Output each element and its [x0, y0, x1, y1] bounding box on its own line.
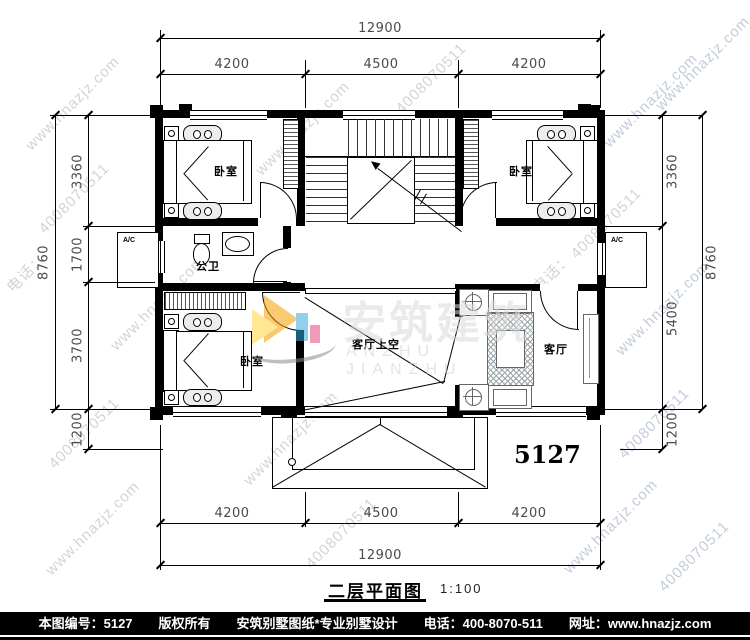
wall-bath-bottom	[155, 283, 305, 291]
door-leaf	[495, 182, 496, 218]
pilaster	[587, 407, 600, 420]
lamp-icon	[584, 130, 591, 137]
door-leaf	[260, 182, 261, 218]
room-label-bedroom: 卧室	[214, 163, 238, 179]
drawing-scale: 1:100	[440, 581, 483, 596]
footer-phone: 电话：400-8070-511	[424, 612, 543, 635]
dim-label: 8760	[37, 233, 52, 293]
porch-column	[288, 458, 296, 466]
footer-website: 网址：www.hnazjz.com	[569, 612, 712, 635]
dim-label: 5400	[666, 289, 681, 349]
dim-label: 4500	[341, 57, 421, 72]
side-cabinet-line	[589, 318, 590, 378]
dim-line	[160, 523, 600, 524]
room-label-bedroom: 卧室	[240, 353, 264, 369]
wardrobe	[283, 119, 299, 189]
lamp-icon	[168, 318, 175, 325]
extension-line	[600, 425, 601, 570]
extension-line	[83, 282, 155, 283]
lamp-icon	[168, 130, 175, 137]
door-leaf	[253, 281, 287, 282]
dim-label: 4200	[489, 57, 569, 72]
nightstand	[537, 202, 576, 220]
footer-plan-id: 本图编号：5127	[39, 612, 133, 635]
extension-line	[458, 60, 459, 108]
nightstand	[183, 389, 222, 406]
window	[190, 110, 267, 120]
speaker-cross	[463, 396, 482, 397]
dim-line	[160, 565, 600, 566]
speaker-cross	[463, 301, 482, 302]
tv-screen	[496, 330, 525, 368]
door-arc	[262, 292, 301, 331]
watermark-text: www.hnazjz.com	[600, 50, 701, 151]
tv-console-inner	[493, 293, 527, 310]
dim-line	[55, 115, 56, 409]
plan-number: 5127	[514, 440, 581, 469]
stair-treads-upper	[348, 119, 455, 157]
speaker-icon	[465, 294, 482, 311]
stair-treads-left	[306, 157, 347, 222]
extension-line	[83, 449, 163, 450]
floorplan-sheet: { "title": {"text": "二层平面图", "scale": "1…	[0, 0, 750, 640]
room-label-living: 客厅	[544, 341, 568, 357]
room-label-bedroom: 卧室	[509, 163, 533, 179]
lamp-icon	[168, 207, 175, 214]
sink-basin	[225, 236, 250, 252]
room-label-bath: 公卫	[196, 258, 220, 274]
title-underline	[324, 599, 426, 602]
door-arc	[540, 291, 579, 330]
extension-line	[50, 115, 155, 116]
dim-label: 12900	[330, 21, 430, 36]
dim-label: 1700	[71, 225, 86, 285]
pilaster	[179, 104, 192, 111]
bed-mattress	[526, 140, 584, 204]
watermark-text: 4008070511	[656, 518, 733, 595]
watermark-text: 4008070511	[616, 385, 693, 462]
dim-tick	[698, 404, 707, 413]
drawing-canvas: www.hnazjz.com www.hnazjz.com 4008070511…	[0, 0, 750, 612]
dim-label: 3700	[71, 316, 86, 376]
bed-headboard	[582, 140, 598, 204]
extension-line	[50, 409, 155, 410]
void-railing	[305, 288, 457, 294]
footer-bar: 本图编号：5127 版权所有 安筑别墅图纸*专业别墅设计 电话：400-8070…	[0, 612, 750, 640]
nightstand	[183, 313, 222, 331]
dim-label: 1200	[666, 400, 681, 460]
watermark-text: www.hnazjz.com	[652, 13, 750, 114]
extension-line	[605, 226, 662, 227]
dim-line	[160, 74, 600, 75]
window	[492, 110, 563, 120]
door-opening	[540, 284, 578, 291]
dim-label: 1200	[71, 400, 86, 460]
watermark-text: www.hnazjz.com	[42, 478, 143, 579]
window	[173, 406, 261, 417]
extension-line	[605, 409, 702, 410]
lamp-icon	[168, 394, 175, 401]
footer-brand: 安筑别墅图纸*专业别墅设计	[237, 612, 398, 635]
door-leaf	[577, 291, 578, 329]
extension-line	[600, 30, 601, 108]
ac-label: A/C	[123, 237, 135, 244]
ac-label: A/C	[611, 237, 623, 244]
dim-label: 12900	[330, 548, 430, 563]
dim-label: 4200	[192, 57, 272, 72]
dim-label: 3360	[666, 142, 681, 202]
room-label-void: 客厅上空	[352, 336, 400, 352]
dim-label: 8760	[705, 233, 720, 293]
extension-line	[160, 425, 161, 570]
extension-line	[605, 115, 702, 116]
logo-pink-shape	[310, 325, 320, 343]
door-opening	[460, 218, 496, 226]
extension-line	[620, 449, 662, 450]
watermark-text: www.hnazjz.com	[560, 476, 661, 577]
dim-label: 3360	[71, 142, 86, 202]
dim-line	[702, 115, 703, 409]
side-cabinet	[583, 314, 599, 384]
tv-console-inner	[493, 389, 527, 406]
pilaster	[150, 105, 163, 118]
extension-line	[83, 226, 155, 227]
extension-line	[305, 60, 306, 108]
extension-line	[160, 30, 161, 108]
porch-inner	[292, 417, 475, 470]
dim-label: 4200	[192, 506, 272, 521]
wardrobe	[164, 292, 246, 310]
door-opening	[258, 218, 296, 226]
dim-line	[662, 115, 663, 450]
dim-line	[160, 38, 600, 39]
pilaster	[578, 104, 591, 111]
window	[305, 406, 453, 417]
speaker-icon	[465, 389, 482, 406]
door-arc	[253, 248, 288, 283]
door-leaf	[262, 292, 300, 293]
wardrobe	[463, 119, 479, 189]
dim-label: 4500	[341, 506, 421, 521]
dim-label: 4200	[489, 506, 569, 521]
lamp-icon	[584, 207, 591, 214]
nightstand	[183, 202, 222, 220]
bed-foot-line	[243, 141, 244, 201]
footer-copyright: 版权所有	[159, 612, 211, 635]
watermark-text: www.hnazjz.com	[22, 53, 123, 154]
